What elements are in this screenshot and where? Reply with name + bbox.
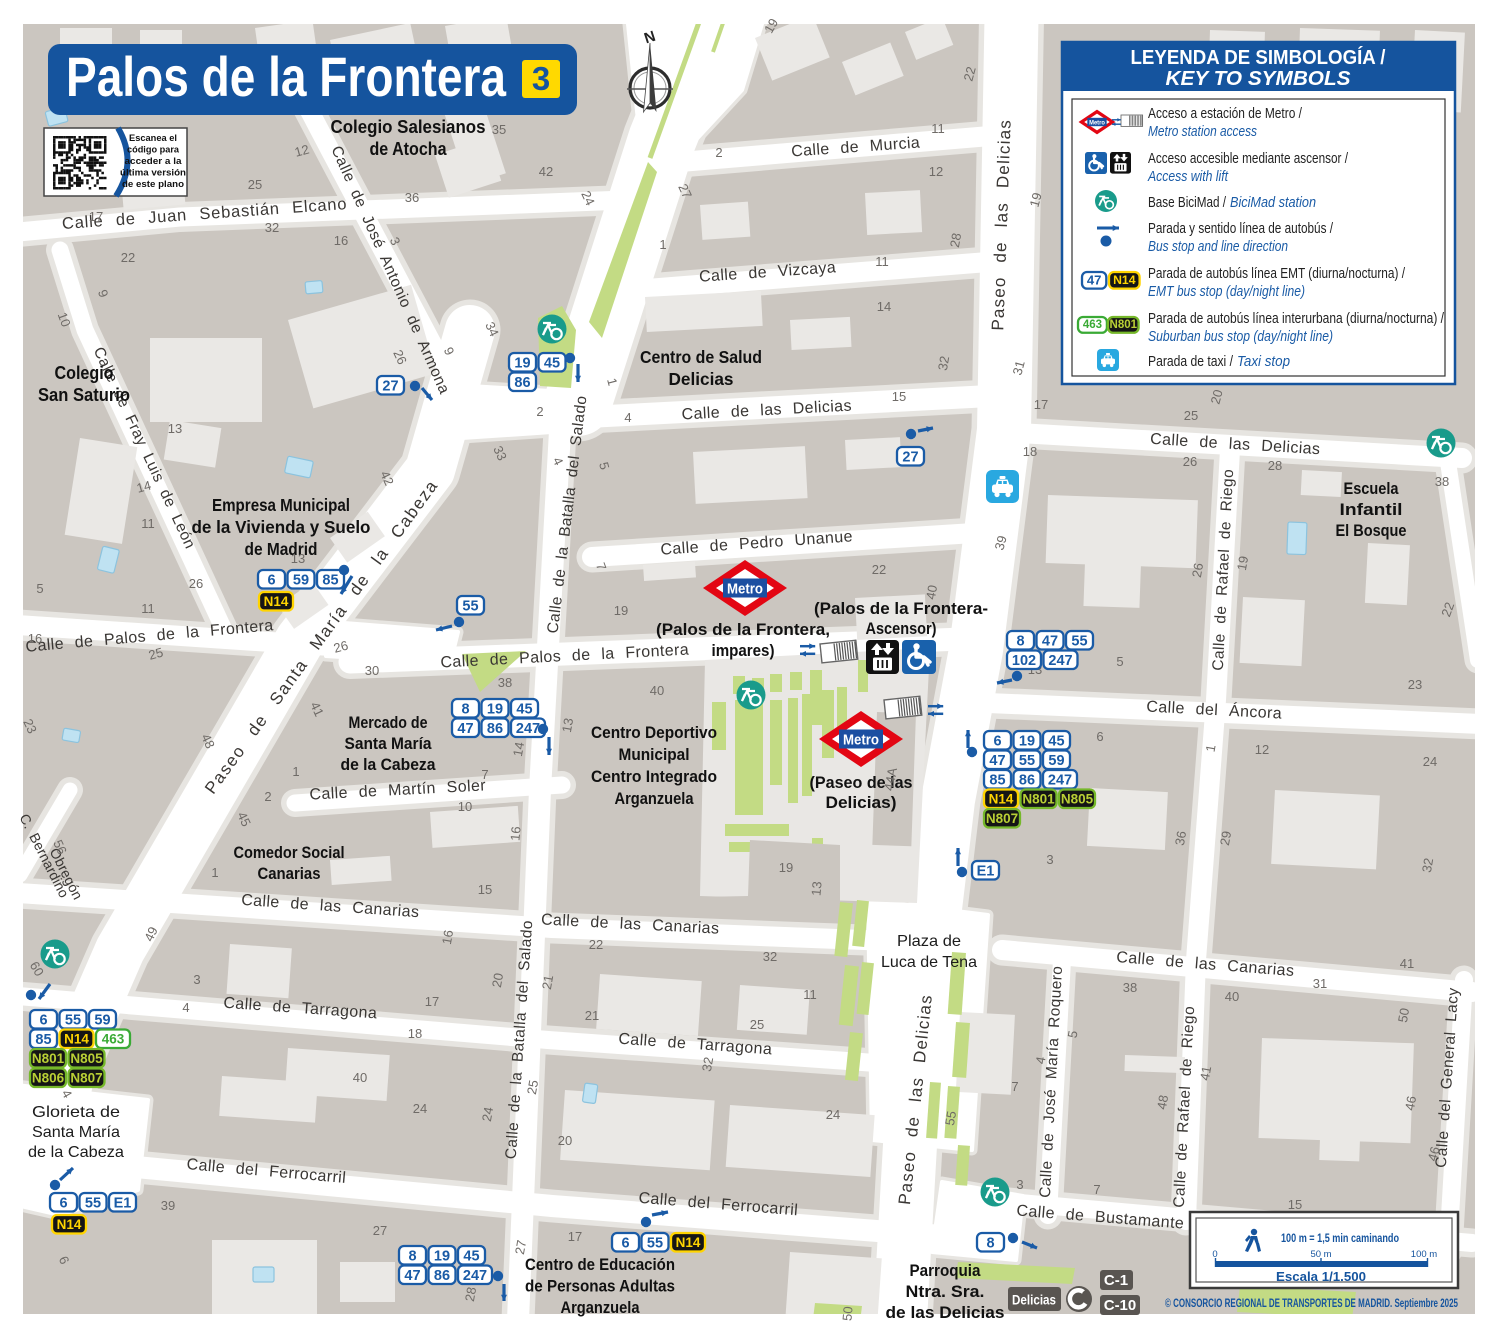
svg-text:14: 14	[877, 299, 891, 314]
svg-text:85: 85	[989, 773, 1005, 789]
svg-text:22: 22	[589, 937, 603, 952]
svg-text:3: 3	[1016, 1177, 1023, 1192]
svg-text:38: 38	[1435, 474, 1449, 489]
svg-text:7: 7	[1093, 1182, 1100, 1197]
svg-text:86: 86	[434, 1268, 450, 1284]
svg-text:22: 22	[121, 250, 135, 265]
svg-text:LEYENDA DE SIMBOLOGÍA /: LEYENDA DE SIMBOLOGÍA /	[1131, 46, 1386, 69]
svg-text:16: 16	[439, 929, 456, 946]
svg-text:463: 463	[1083, 319, 1102, 331]
svg-text:85: 85	[322, 573, 338, 589]
svg-text:27: 27	[373, 1223, 387, 1238]
svg-text:7: 7	[481, 767, 488, 782]
svg-text:28: 28	[1268, 458, 1282, 473]
svg-text:24: 24	[1423, 754, 1437, 769]
svg-text:KEY TO SYMBOLS: KEY TO SYMBOLS	[1166, 67, 1351, 90]
svg-text:3: 3	[193, 972, 200, 987]
svg-text:55: 55	[1019, 753, 1035, 769]
svg-text:8: 8	[1016, 634, 1024, 650]
svg-text:17: 17	[568, 1229, 582, 1244]
svg-text:6: 6	[267, 573, 275, 589]
svg-text:Acceso accesible mediante asce: Acceso accesible mediante ascensor /	[1148, 150, 1349, 167]
svg-text:1: 1	[659, 237, 666, 252]
svg-text:EMT bus stop (day/night line): EMT bus stop (day/night line)	[1148, 283, 1305, 300]
svg-text:19: 19	[514, 356, 530, 372]
svg-text:30: 30	[365, 663, 379, 678]
svg-text:Delicias: Delicias	[1012, 1293, 1056, 1308]
svg-text:32: 32	[935, 355, 952, 372]
svg-text:40: 40	[1225, 989, 1239, 1004]
svg-text:13: 13	[291, 551, 305, 566]
svg-text:32: 32	[1419, 857, 1436, 874]
svg-text:C-1: C-1	[1104, 1272, 1128, 1289]
svg-text:26: 26	[189, 576, 203, 591]
svg-text:1: 1	[211, 865, 218, 880]
svg-text:36: 36	[1172, 830, 1189, 847]
svg-text:25: 25	[1184, 408, 1198, 423]
svg-text:N805: N805	[1061, 792, 1094, 807]
svg-text:32: 32	[763, 949, 777, 964]
svg-text:Acceso a estación de Metro /: Acceso a estación de Metro /	[1148, 105, 1303, 122]
svg-text:55: 55	[1071, 634, 1087, 650]
svg-text:40: 40	[923, 584, 940, 601]
svg-text:EscuelaInfantilEl Bosque: EscuelaInfantilEl Bosque	[1336, 479, 1407, 540]
svg-text:26: 26	[1183, 454, 1197, 469]
svg-text:16: 16	[507, 826, 523, 842]
svg-text:36: 36	[405, 190, 419, 205]
svg-text:24: 24	[413, 1101, 427, 1116]
svg-text:55: 55	[85, 1196, 101, 1212]
svg-text:20: 20	[558, 1133, 572, 1148]
svg-text:Suburban bus stop (day/night l: Suburban bus stop (day/night line)	[1148, 328, 1333, 345]
svg-text:N14: N14	[1113, 273, 1136, 287]
svg-text:13: 13	[808, 881, 824, 897]
svg-text:0: 0	[1212, 1249, 1217, 1260]
svg-text:47: 47	[989, 753, 1005, 769]
svg-text:C-10: C-10	[1104, 1297, 1137, 1314]
svg-text:50: 50	[1395, 1007, 1412, 1024]
svg-text:2: 2	[536, 404, 543, 419]
svg-text:12: 12	[1255, 742, 1269, 757]
svg-text:15: 15	[892, 389, 906, 404]
svg-text:N14: N14	[676, 1235, 701, 1250]
svg-text:8: 8	[461, 702, 469, 718]
svg-text:7: 7	[1011, 1079, 1018, 1094]
svg-text:5: 5	[1116, 654, 1123, 669]
svg-text:86: 86	[1019, 773, 1035, 789]
svg-text:Escanea elcódigo paraacceder a: Escanea elcódigo paraacceder a laúltima …	[120, 133, 186, 190]
svg-text:N801: N801	[1022, 792, 1055, 807]
svg-text:24: 24	[479, 1106, 496, 1123]
svg-text:Parada de autobús línea EMT (d: Parada de autobús línea EMT (diurna/noct…	[1148, 265, 1406, 282]
svg-text:27: 27	[382, 379, 398, 395]
svg-text:23: 23	[1408, 677, 1422, 692]
svg-text:Metro: Metro	[1089, 119, 1105, 126]
svg-text:29: 29	[1217, 830, 1234, 847]
svg-text:25: 25	[248, 177, 262, 192]
svg-text:19: 19	[434, 1249, 450, 1265]
svg-text:12: 12	[929, 164, 943, 179]
svg-text:31: 31	[1313, 976, 1327, 991]
svg-text:8: 8	[986, 1236, 994, 1252]
svg-text:5: 5	[36, 581, 43, 596]
svg-text:19: 19	[614, 603, 628, 618]
svg-text:85: 85	[35, 1032, 51, 1048]
svg-text:100 m = 1,5 min caminando: 100 m = 1,5 min caminando	[1281, 1233, 1399, 1245]
svg-text:N801: N801	[32, 1051, 65, 1066]
svg-text:N806: N806	[32, 1071, 65, 1086]
svg-text:N14: N14	[989, 792, 1014, 807]
svg-text:55: 55	[65, 1013, 81, 1029]
svg-text:17: 17	[89, 209, 103, 224]
svg-text:4: 4	[182, 1000, 189, 1015]
svg-text:41: 41	[1400, 956, 1414, 971]
svg-text:11: 11	[803, 987, 817, 1002]
svg-text:N805: N805	[70, 1051, 103, 1066]
svg-text:6: 6	[39, 1013, 47, 1029]
svg-text:41: 41	[1197, 1065, 1214, 1082]
svg-text:6: 6	[993, 734, 1001, 750]
svg-text:21: 21	[539, 974, 556, 991]
svg-text:45: 45	[1048, 734, 1064, 750]
svg-text:46: 46	[1402, 1095, 1419, 1112]
svg-text:17: 17	[1034, 397, 1048, 412]
svg-text:47: 47	[404, 1268, 420, 1284]
svg-text:19: 19	[779, 860, 793, 875]
svg-text:47: 47	[457, 721, 473, 737]
svg-text:45: 45	[544, 356, 560, 372]
svg-text:247: 247	[516, 721, 540, 737]
svg-text:16: 16	[28, 631, 42, 646]
svg-text:18: 18	[408, 1026, 422, 1041]
svg-text:47: 47	[1042, 634, 1058, 650]
svg-text:26: 26	[1189, 562, 1206, 579]
svg-text:40: 40	[650, 683, 664, 698]
svg-text:27: 27	[902, 450, 918, 466]
svg-text:2: 2	[264, 789, 271, 804]
svg-text:24: 24	[826, 1107, 840, 1122]
svg-text:11: 11	[141, 516, 155, 531]
svg-text:17: 17	[425, 994, 439, 1009]
svg-text:6: 6	[1096, 729, 1103, 744]
svg-text:21: 21	[585, 1008, 599, 1023]
svg-text:N801: N801	[1110, 319, 1138, 331]
svg-text:48: 48	[1154, 1094, 1171, 1111]
svg-text:16: 16	[334, 233, 348, 248]
svg-text:E1: E1	[977, 864, 995, 880]
svg-text:N14: N14	[264, 594, 289, 609]
svg-text:47: 47	[1087, 273, 1102, 288]
svg-text:18: 18	[1023, 444, 1037, 459]
svg-text:463: 463	[102, 1032, 125, 1047]
svg-text:N14: N14	[57, 1217, 82, 1232]
svg-text:55: 55	[462, 599, 478, 615]
svg-text:15: 15	[1288, 1197, 1302, 1212]
svg-text:35: 35	[492, 122, 506, 137]
svg-text:247: 247	[1048, 773, 1072, 789]
svg-text:Parada de taxi /Taxi stop: Parada de taxi /Taxi stop	[1148, 353, 1290, 370]
svg-text:22: 22	[872, 562, 886, 577]
svg-text:32: 32	[265, 220, 279, 235]
svg-text:11: 11	[141, 601, 155, 616]
svg-text:25: 25	[750, 1017, 764, 1032]
svg-text:100 m: 100 m	[1411, 1249, 1437, 1260]
svg-text:E1: E1	[114, 1196, 132, 1212]
svg-text:N807: N807	[70, 1071, 102, 1086]
svg-text:3: 3	[532, 60, 550, 97]
svg-text:45: 45	[463, 1249, 479, 1265]
svg-text:13: 13	[168, 421, 182, 436]
svg-text:25: 25	[524, 1079, 541, 1096]
svg-text:59: 59	[94, 1013, 110, 1029]
svg-text:Base BiciMad /BiciMad station: Base BiciMad /BiciMad station	[1148, 194, 1316, 211]
svg-text:19: 19	[1019, 734, 1035, 750]
svg-text:19: 19	[1234, 555, 1251, 572]
svg-text:11: 11	[931, 121, 945, 136]
svg-text:6: 6	[59, 1196, 67, 1212]
svg-text:247: 247	[1048, 653, 1072, 669]
svg-text:Parada de autobús línea interu: Parada de autobús línea interurbana (diu…	[1148, 310, 1445, 327]
svg-text:247: 247	[463, 1268, 487, 1284]
svg-text:102: 102	[1012, 653, 1036, 669]
svg-text:50: 50	[839, 1306, 855, 1322]
svg-text:13: 13	[559, 717, 576, 734]
svg-text:39: 39	[161, 1198, 175, 1213]
svg-text:27: 27	[512, 1239, 529, 1256]
svg-text:20: 20	[489, 972, 506, 989]
svg-text:Glorieta deSanta Maríade la Ca: Glorieta deSanta Maríade la Cabeza	[28, 1104, 124, 1161]
svg-text:50 m: 50 m	[1310, 1249, 1331, 1260]
svg-text:8: 8	[408, 1249, 416, 1265]
svg-text:38: 38	[1123, 980, 1137, 995]
svg-text:Metro: Metro	[727, 582, 763, 598]
svg-text:28: 28	[947, 232, 964, 249]
svg-text:14: 14	[510, 741, 527, 758]
svg-text:Parada y sentido línea de auto: Parada y sentido línea de autobús /	[1148, 220, 1334, 237]
svg-text:N14: N14	[64, 1032, 89, 1047]
svg-text:38: 38	[498, 675, 512, 690]
svg-text:28: 28	[462, 1286, 479, 1303]
svg-text:3: 3	[1046, 852, 1053, 867]
svg-text:6: 6	[621, 1236, 629, 1252]
svg-text:Palos de la Frontera: Palos de la Frontera	[66, 45, 507, 108]
svg-text:86: 86	[487, 721, 503, 737]
svg-text:55: 55	[942, 1110, 959, 1127]
svg-text:Bus stop and line direction: Bus stop and line direction	[1148, 238, 1288, 255]
svg-text:Mercado deSanta Maríade la Cab: Mercado deSanta Maríade la Cabeza	[341, 713, 436, 774]
svg-text:N807: N807	[986, 811, 1018, 826]
svg-text:19: 19	[487, 702, 503, 718]
svg-text:40: 40	[353, 1070, 367, 1085]
svg-text:32: 32	[699, 1056, 716, 1073]
svg-text:45: 45	[516, 702, 532, 718]
svg-text:Escala 1/1.500: Escala 1/1.500	[1276, 1269, 1366, 1284]
svg-text:59: 59	[293, 573, 309, 589]
svg-text:Metro: Metro	[843, 733, 879, 749]
svg-text:4: 4	[624, 410, 631, 425]
svg-text:86: 86	[514, 375, 530, 391]
svg-text:59: 59	[1048, 753, 1064, 769]
svg-text:Metro station access: Metro station access	[1148, 123, 1257, 140]
svg-text:15: 15	[478, 882, 492, 897]
svg-text:55: 55	[647, 1236, 663, 1252]
svg-text:1: 1	[292, 764, 299, 779]
svg-text:11: 11	[875, 254, 889, 269]
svg-text:10: 10	[458, 799, 472, 814]
svg-text:2: 2	[715, 145, 722, 160]
svg-text:42: 42	[539, 164, 553, 179]
svg-text:Access with lift: Access with lift	[1147, 168, 1228, 185]
svg-text:© CONSORCIO REGIONAL DE TRANSP: © CONSORCIO REGIONAL DE TRANSPORTES DE M…	[1165, 1298, 1458, 1310]
